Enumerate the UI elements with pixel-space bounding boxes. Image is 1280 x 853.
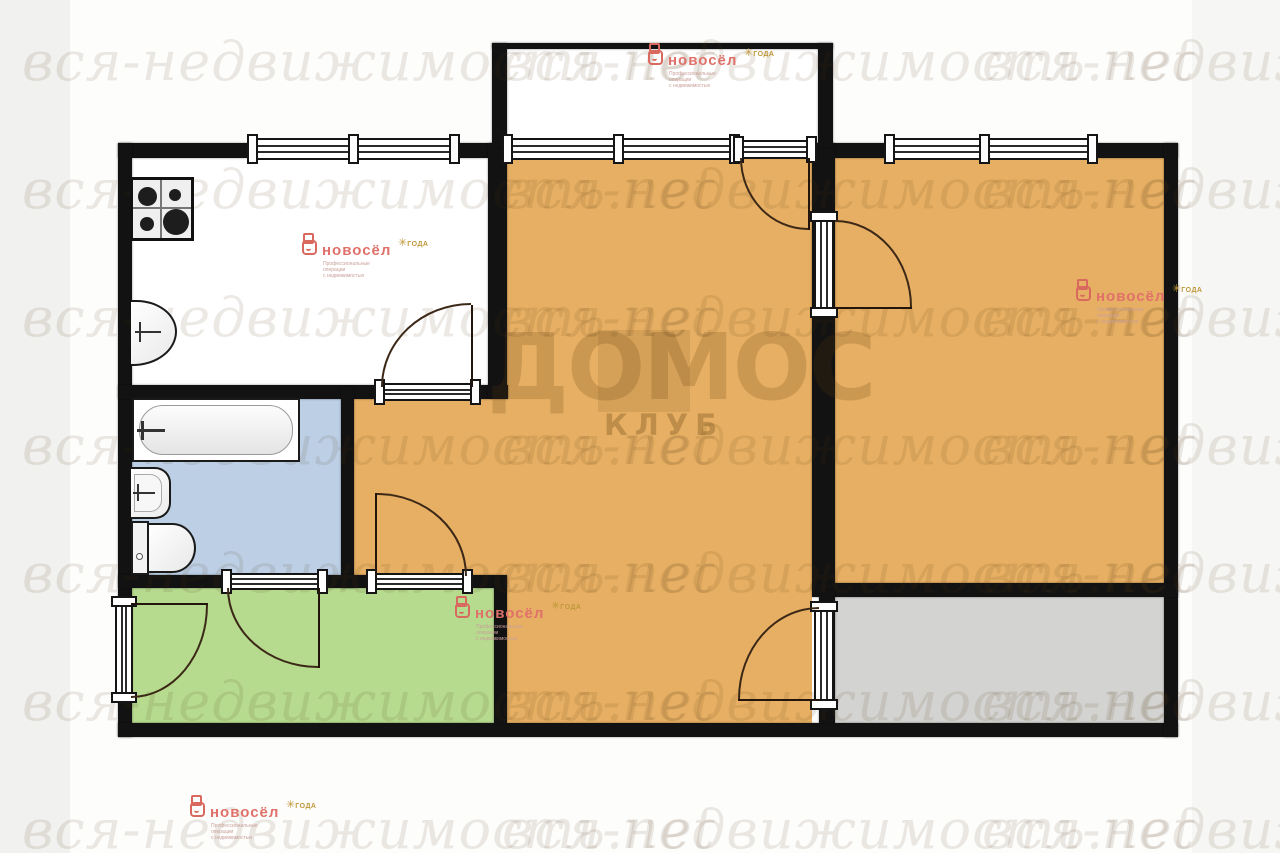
bedroom-window-frame	[884, 134, 895, 164]
domos-watermark-square	[598, 330, 690, 412]
gas-stove-icon-burner	[140, 217, 154, 231]
loggia-door-sill-pane	[826, 607, 828, 705]
wall-outer-right	[1164, 143, 1178, 737]
toilet-icon-bowl	[149, 523, 196, 573]
living-room-window-frame	[502, 134, 513, 164]
kitchen-window-frame	[247, 134, 258, 164]
bathroom-door-leaf	[318, 588, 320, 668]
hallway-door-sill-pane	[372, 583, 468, 585]
bathtub-icon-faucet-v	[141, 421, 144, 440]
balcony-stub-left	[492, 43, 507, 147]
gas-stove-icon-burner	[138, 187, 157, 206]
wall-kitchen-right	[488, 143, 507, 398]
bedroom-door-sill-pane	[820, 217, 822, 313]
loggia	[835, 597, 1164, 723]
bedroom-door-sill-frame	[810, 211, 838, 222]
bedroom	[835, 158, 1164, 583]
wall-outer-bottom	[118, 723, 1178, 737]
kitchen-sink-icon-faucet-v	[139, 322, 141, 342]
apartment-floor-plan: ДОМОСКЛУБ	[0, 0, 1280, 853]
living-room-window	[506, 138, 737, 160]
bedroom-window	[888, 138, 1095, 160]
gas-stove-icon	[130, 177, 194, 241]
bathtub-icon	[132, 398, 300, 462]
balcony-stub-right	[818, 43, 833, 147]
page-left-strip	[0, 0, 70, 853]
wall-hallway-right	[494, 577, 507, 723]
gas-stove-icon-grid-h	[133, 207, 191, 209]
kitchen-door-sill-pane	[380, 393, 476, 395]
bathroom-door-sill-pane	[227, 583, 323, 585]
loggia-door-leaf	[738, 699, 820, 701]
balcony-door-sill	[737, 140, 814, 159]
bedroom-door-sill-frame	[810, 307, 838, 318]
gas-stove-icon-grid-v	[160, 180, 162, 238]
entrance-door-sill-pane	[125, 602, 127, 698]
washbasin-icon-faucet-v	[137, 484, 139, 501]
kitchen-window-frame	[449, 134, 460, 164]
gas-stove-icon-burner	[169, 189, 181, 201]
bedroom-window-pane	[890, 151, 1093, 153]
bedroom-door-sill-pane	[826, 217, 828, 313]
kitchen-door-leaf	[471, 305, 473, 387]
balcony	[497, 49, 818, 143]
balcony-railing	[492, 43, 833, 49]
living-room-window-frame	[613, 134, 624, 164]
gas-stove-icon-burner	[163, 209, 189, 235]
page-right-strip	[1192, 0, 1280, 853]
kitchen-window-frame	[348, 134, 359, 164]
washbasin-icon	[131, 467, 171, 519]
kitchen-window	[251, 138, 457, 160]
kitchen-door-sill-pane	[380, 389, 476, 391]
bedroom-window-frame	[979, 134, 990, 164]
floor-plan-image: ДОМОСКЛУБ вся-недвижимость.netвся-недвиж…	[0, 0, 1280, 853]
balcony-door-sill-pane	[739, 151, 812, 153]
hallway-door-sill-pane	[372, 578, 468, 580]
bedroom-door-leaf	[835, 307, 912, 309]
wall-bathroom-right	[341, 387, 354, 588]
bedroom-window-pane	[890, 145, 1093, 147]
toilet-icon-tank	[131, 521, 149, 575]
bathroom-door-sill-pane	[227, 578, 323, 580]
wall-bedroom-bottom	[812, 583, 1178, 597]
bedroom-window-frame	[1087, 134, 1098, 164]
loggia-door-sill-pane	[820, 607, 822, 705]
balcony-door-sill-pane	[739, 146, 812, 148]
toilet-icon-tank-button	[136, 553, 143, 560]
balcony-door-leaf	[808, 158, 810, 230]
entrance-door-sill-pane	[121, 602, 123, 698]
bedroom-door-sill	[814, 215, 834, 315]
